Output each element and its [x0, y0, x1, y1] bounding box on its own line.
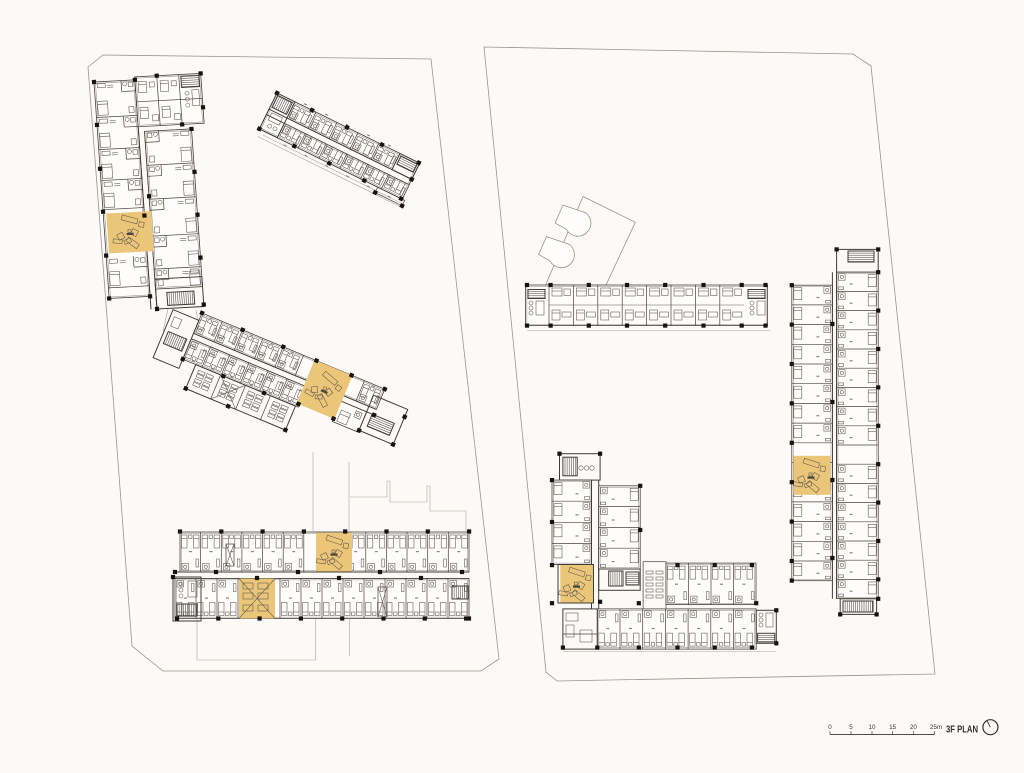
svg-text:5: 5 — [849, 724, 853, 731]
svg-text:20: 20 — [910, 724, 918, 731]
svg-text:10: 10 — [868, 724, 876, 731]
svg-text:0: 0 — [828, 724, 832, 731]
svg-text:25m: 25m — [930, 724, 942, 731]
svg-text:3F PLAN: 3F PLAN — [946, 725, 978, 736]
svg-text:15: 15 — [889, 724, 897, 731]
